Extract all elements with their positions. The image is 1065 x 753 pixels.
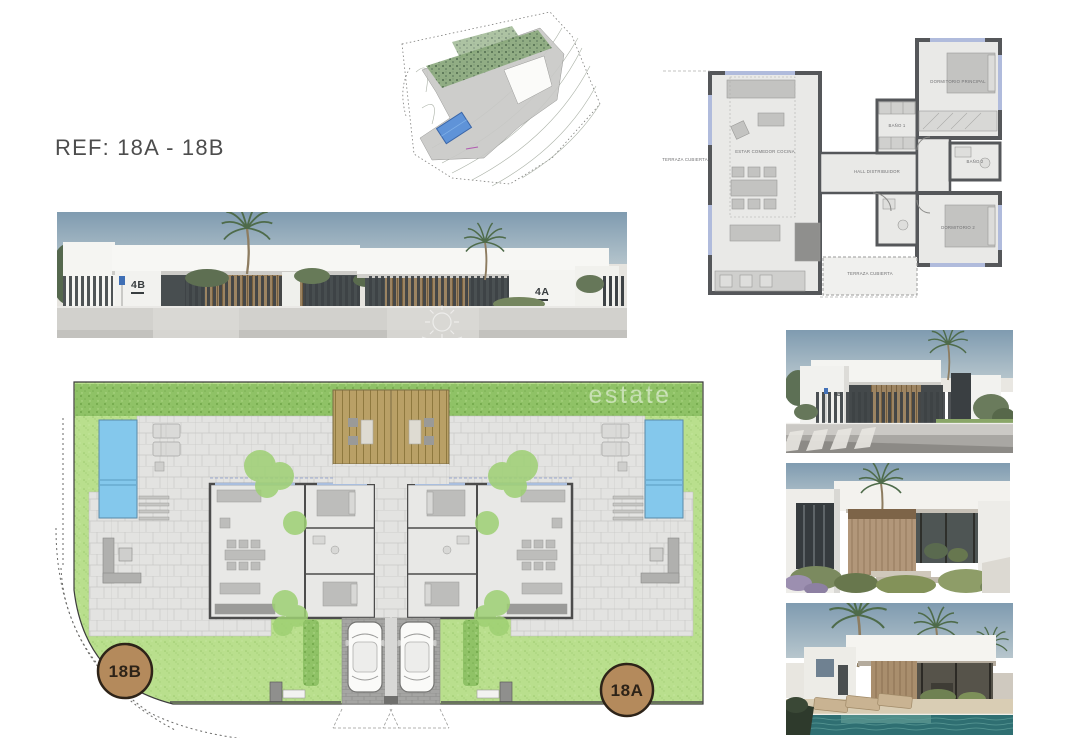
- reference-title: REF: 18A - 18B: [55, 135, 225, 161]
- photo-pool-view: [786, 603, 1013, 735]
- house-4a: 4A: [357, 248, 627, 314]
- street-sign-icon: [119, 276, 125, 285]
- driveway-apron-marks: [333, 709, 449, 728]
- badge-18b: 18B: [98, 644, 152, 698]
- svg-text:BAÑO 1: BAÑO 1: [889, 123, 906, 128]
- svg-text:TERRAZA CUBIERTA: TERRAZA CUBIERTA: [847, 271, 893, 276]
- svg-text:18A: 18A: [611, 681, 644, 700]
- drive-hedge: [303, 620, 319, 686]
- photo-house-number: 4B: [834, 392, 841, 398]
- house-number-4b: 4B: [131, 279, 145, 291]
- brochure-page: REF: 18A - 18B: [0, 0, 1065, 753]
- svg-text:BAÑO 2: BAÑO 2: [967, 159, 984, 164]
- watermark-estate: estate: [588, 381, 671, 409]
- svg-text:ESTAR COMEDOR COCINA: ESTAR COMEDOR COCINA: [735, 149, 795, 154]
- wood-deck: [333, 390, 391, 484]
- photo-facade-detail: [786, 463, 1010, 593]
- svg-text:HALL DISTRIBUIDOR: HALL DISTRIBUIDOR: [854, 169, 900, 174]
- svg-text:TERRAZA CUBIERTA: TERRAZA CUBIERTA: [662, 157, 708, 162]
- svg-text:DORMITORIO 2: DORMITORIO 2: [941, 225, 975, 230]
- site-plan: 18B 18A estate: [55, 378, 705, 738]
- sun-lounger: [153, 442, 180, 456]
- floor-plan: TERRAZA CUBIERTA ESTAR COMEDOR COCINA HA…: [655, 25, 1005, 305]
- road: [57, 306, 627, 338]
- entry-walk: [375, 484, 391, 618]
- svg-text:18B: 18B: [109, 662, 142, 681]
- photo-street-view: 4B: [786, 330, 1013, 453]
- site-location-map: [392, 8, 620, 190]
- badge-18a: 18A: [601, 664, 653, 716]
- house-number-4a: 4A: [535, 286, 549, 298]
- sun-lounger: [153, 424, 180, 438]
- swimming-pool: [99, 420, 137, 518]
- svg-text:DORMITORIO PRINCIPAL: DORMITORIO PRINCIPAL: [930, 79, 986, 84]
- car-icon: [346, 622, 385, 692]
- facade-elevation-render: 4B 4A: [57, 212, 627, 338]
